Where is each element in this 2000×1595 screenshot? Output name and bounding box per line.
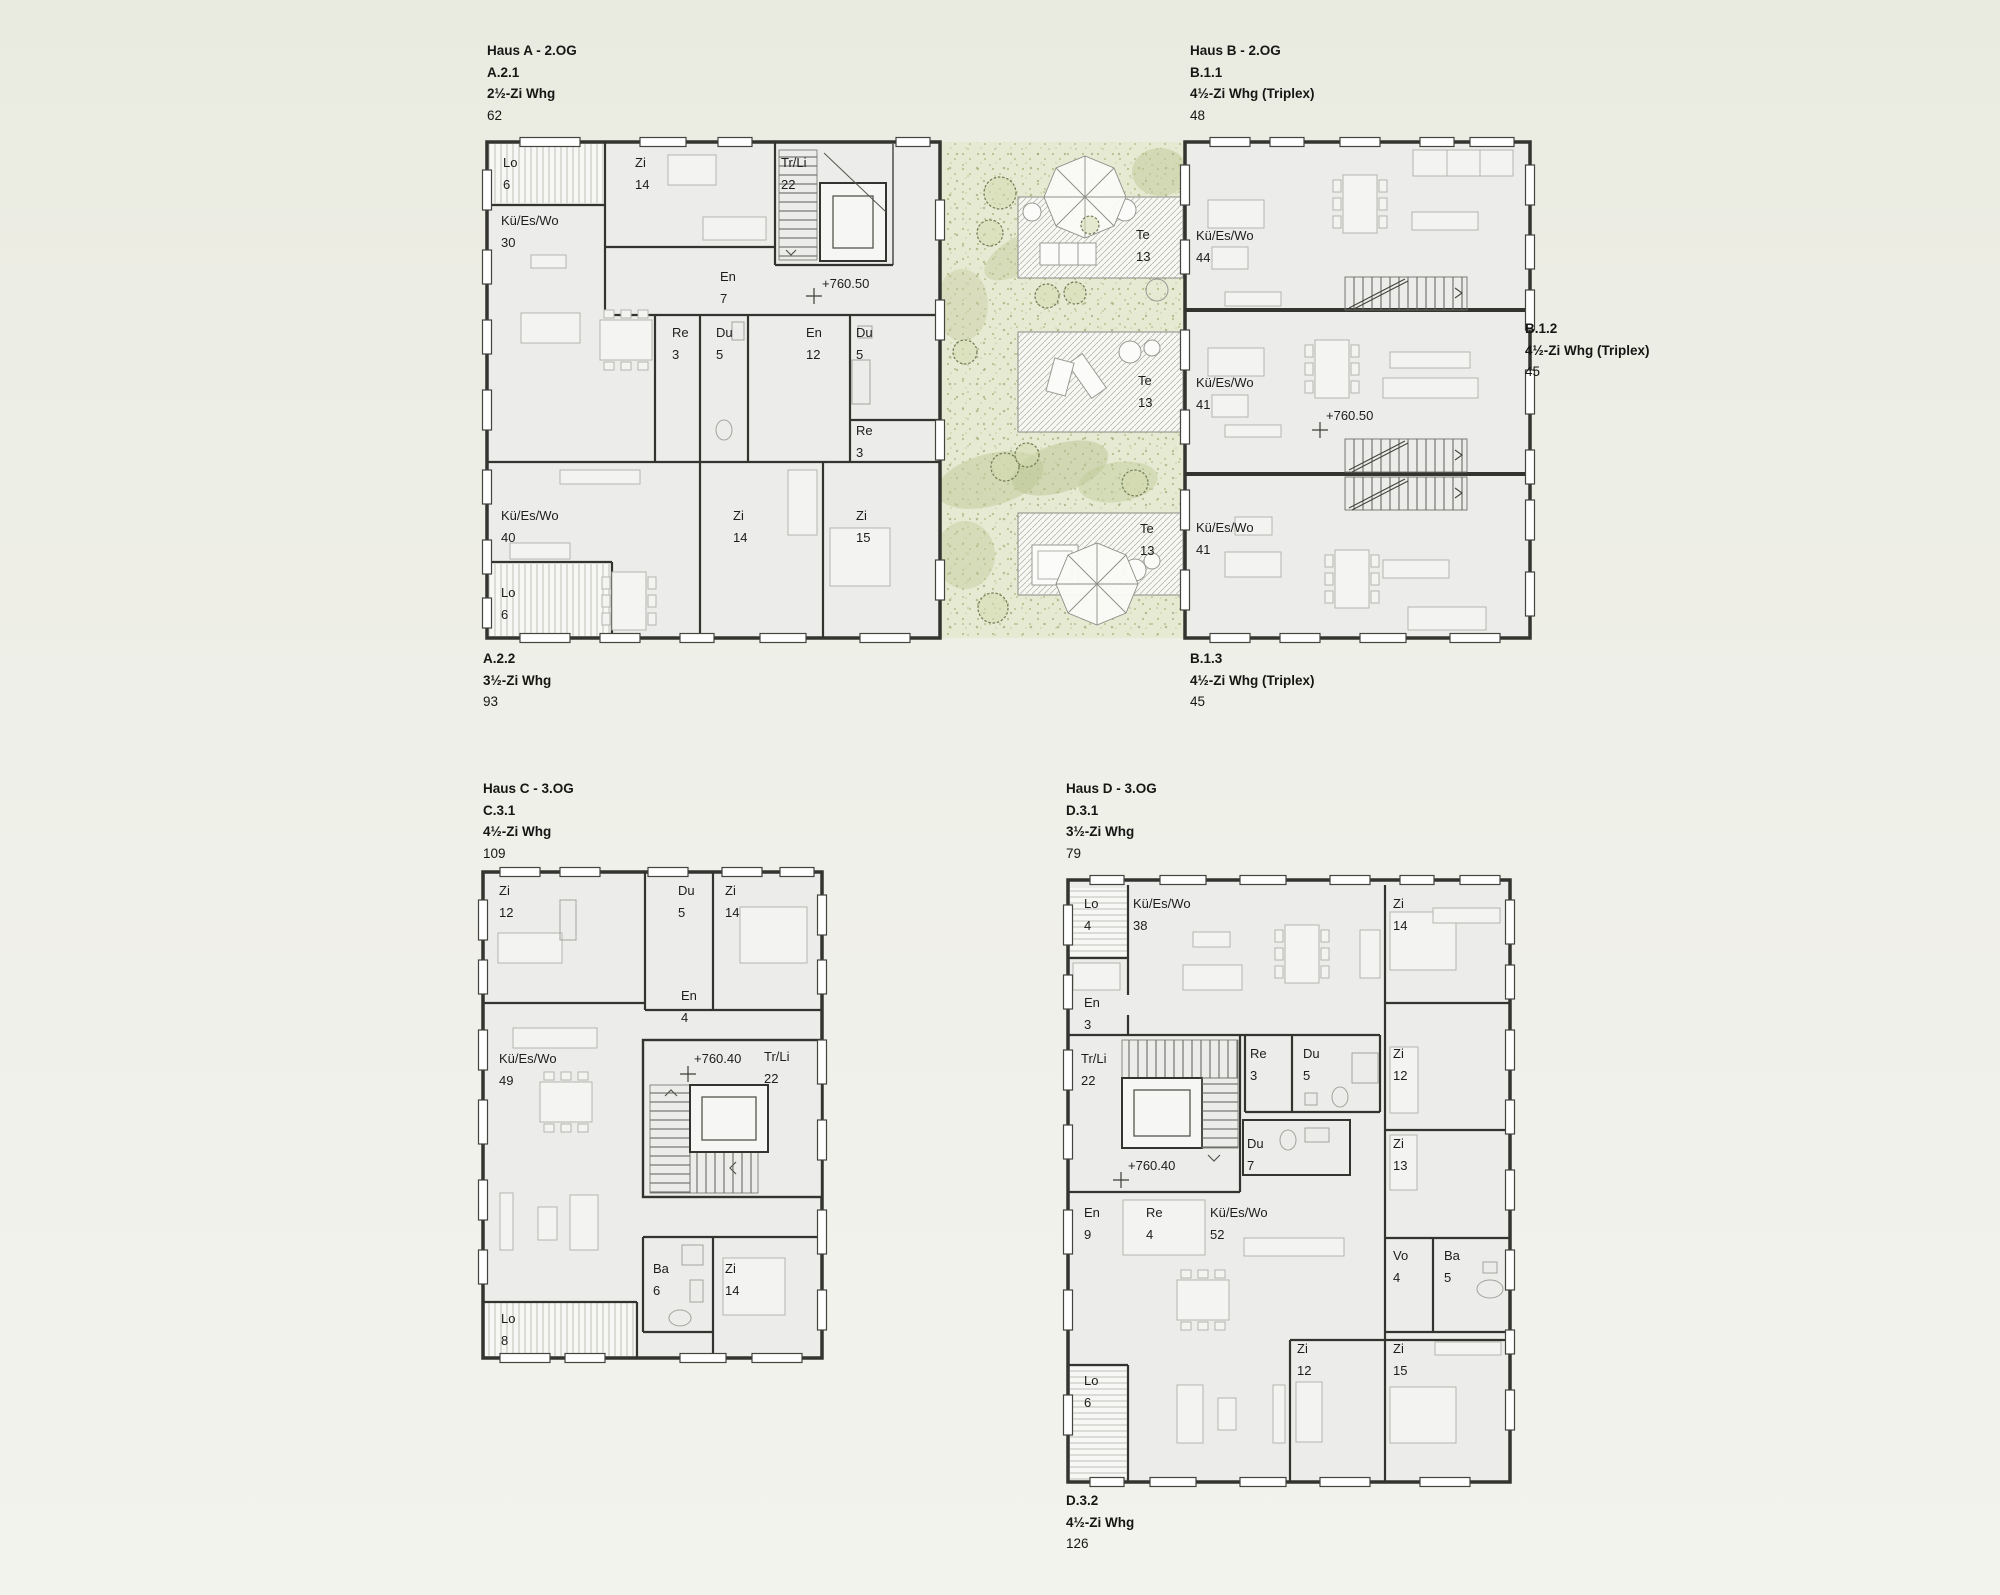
haus-d-plan	[1064, 876, 1515, 1487]
room-area: 3	[672, 344, 689, 366]
room-name: Zi	[1393, 1133, 1407, 1155]
unit-type: 4½-Zi Whg (Triplex)	[1190, 670, 1315, 692]
room-name: Lo	[501, 1308, 515, 1330]
haus-b-unit: B.1.1	[1190, 62, 1315, 84]
room-name: Te	[1140, 518, 1154, 540]
haus-d-type: 3½-Zi Whg	[1066, 821, 1157, 843]
room-area: 41	[1196, 394, 1254, 416]
haus-d-title: Haus D - 3.OG	[1066, 778, 1157, 800]
room-name: En	[681, 985, 697, 1007]
room-label: Zi13	[1393, 1133, 1407, 1177]
unit-area: 93	[483, 691, 551, 713]
haus-c-type: 4½-Zi Whg	[483, 821, 574, 843]
room-name: Zi	[635, 152, 649, 174]
room-label: Zi14	[725, 880, 739, 924]
room-area: 6	[501, 604, 515, 626]
room-label: Re3	[672, 322, 689, 366]
room-label: Ba5	[1444, 1245, 1460, 1289]
room-name: En	[1084, 992, 1100, 1014]
room-area: 4	[681, 1007, 697, 1029]
room-name: Du	[1303, 1043, 1320, 1065]
room-name: En	[1084, 1202, 1100, 1224]
haus-c-title: Haus C - 3.OG	[483, 778, 574, 800]
unit-area: 126	[1066, 1533, 1134, 1555]
room-name: Zi	[725, 1258, 739, 1280]
unit-label: B.1.3	[1190, 648, 1315, 670]
room-label: Du5	[856, 322, 873, 366]
room-label: En9	[1084, 1202, 1100, 1246]
floor-plan-drawing	[0, 0, 2000, 1595]
room-area: 22	[781, 174, 807, 196]
room-area: 4	[1084, 915, 1098, 937]
room-area: 52	[1210, 1224, 1268, 1246]
room-area: 15	[1393, 1360, 1407, 1382]
room-label: En3	[1084, 992, 1100, 1036]
room-label: En7	[720, 266, 736, 310]
room-name: Tr/Li	[781, 152, 807, 174]
room-label: Kü/Es/Wo30	[501, 210, 559, 254]
room-area: 9	[1084, 1224, 1100, 1246]
haus-d-unit: D.3.1	[1066, 800, 1157, 822]
room-area: 22	[1081, 1070, 1107, 1092]
room-name: Du	[1247, 1133, 1264, 1155]
room-name: Kü/Es/Wo	[1196, 372, 1254, 394]
room-area: 7	[1247, 1155, 1264, 1177]
room-label: Tr/Li22	[1081, 1048, 1107, 1092]
room-label: Zi15	[1393, 1338, 1407, 1382]
room-area: 12	[806, 344, 822, 366]
room-label: Zi14	[725, 1258, 739, 1302]
room-label: Du5	[1303, 1043, 1320, 1087]
room-name: Re	[856, 420, 873, 442]
room-area: 12	[1393, 1065, 1407, 1087]
room-label: Re3	[856, 420, 873, 464]
room-label: Kü/Es/Wo41	[1196, 517, 1254, 561]
room-name: Te	[1138, 370, 1152, 392]
room-area: 6	[1084, 1392, 1098, 1414]
room-name: Zi	[733, 505, 747, 527]
haus-a-unit: A.2.1	[487, 62, 577, 84]
haus-a-header: Haus A - 2.OG A.2.1 2½-Zi Whg 62	[487, 40, 577, 126]
room-label: Lo6	[503, 152, 517, 196]
room-area: 14	[725, 1280, 739, 1302]
terrace-2	[1018, 332, 1183, 432]
room-area: 13	[1140, 540, 1154, 562]
room-label: Kü/Es/Wo44	[1196, 225, 1254, 269]
room-area: 14	[733, 527, 747, 549]
room-area: 3	[1084, 1014, 1100, 1036]
haus-b-title: Haus B - 2.OG	[1190, 40, 1315, 62]
room-label: Re3	[1250, 1043, 1267, 1087]
room-name: Zi	[725, 880, 739, 902]
room-area: 6	[653, 1280, 669, 1302]
room-name: Vo	[1393, 1245, 1408, 1267]
terrace-label: Te13	[1136, 224, 1150, 268]
room-name: Kü/Es/Wo	[1196, 225, 1254, 247]
elevation-label: +760.40	[694, 1051, 741, 1066]
unit-type: 3½-Zi Whg	[483, 670, 551, 692]
room-label: Zi12	[1393, 1043, 1407, 1087]
room-label: Kü/Es/Wo38	[1133, 893, 1191, 937]
room-area: 6	[503, 174, 517, 196]
haus-c-unit: C.3.1	[483, 800, 574, 822]
room-area: 44	[1196, 247, 1254, 269]
elevation-label: +760.40	[1128, 1158, 1175, 1173]
room-label: Zi15	[856, 505, 870, 549]
room-label: Kü/Es/Wo40	[501, 505, 559, 549]
room-area: 5	[1444, 1267, 1460, 1289]
room-area: 13	[1138, 392, 1152, 414]
room-name: Kü/Es/Wo	[499, 1048, 557, 1070]
haus-a-type: 2½-Zi Whg	[487, 83, 577, 105]
room-name: Kü/Es/Wo	[1196, 517, 1254, 539]
room-name: Kü/Es/Wo	[1133, 893, 1191, 915]
room-area: 12	[499, 902, 513, 924]
terrace-label: Te13	[1138, 370, 1152, 414]
room-name: Tr/Li	[1081, 1048, 1107, 1070]
room-name: En	[806, 322, 822, 344]
room-area: 3	[856, 442, 873, 464]
room-label: Ba6	[653, 1258, 669, 1302]
unit-area: 45	[1190, 691, 1315, 713]
unit-label: B.1.2	[1525, 318, 1650, 340]
room-name: Zi	[1297, 1338, 1311, 1360]
room-area: 13	[1393, 1155, 1407, 1177]
room-name: Kü/Es/Wo	[501, 210, 559, 232]
room-name: Lo	[503, 152, 517, 174]
haus-c-area: 109	[483, 843, 574, 865]
room-name: Re	[1146, 1202, 1163, 1224]
room-label: Lo6	[1084, 1370, 1098, 1414]
room-area: 5	[1303, 1065, 1320, 1087]
room-name: Ba	[1444, 1245, 1460, 1267]
room-label: Tr/Li22	[781, 152, 807, 196]
room-label: Du5	[716, 322, 733, 366]
room-name: Lo	[501, 582, 515, 604]
room-label: Du5	[678, 880, 695, 924]
haus-a-footer: A.2.2 3½-Zi Whg 93	[483, 648, 551, 713]
room-name: Zi	[1393, 1338, 1407, 1360]
room-label: Zi14	[1393, 893, 1407, 937]
room-area: 8	[501, 1330, 515, 1352]
haus-b-header: Haus B - 2.OG B.1.1 4½-Zi Whg (Triplex) …	[1190, 40, 1315, 126]
room-name: Te	[1136, 224, 1150, 246]
haus-b-side-label: B.1.2 4½-Zi Whg (Triplex) 45	[1525, 318, 1650, 383]
room-label: En4	[681, 985, 697, 1029]
room-area: 14	[635, 174, 649, 196]
room-area: 49	[499, 1070, 557, 1092]
room-label: Lo8	[501, 1308, 515, 1352]
haus-a-title: Haus A - 2.OG	[487, 40, 577, 62]
room-name: Re	[1250, 1043, 1267, 1065]
elevation-label: +760.50	[1326, 408, 1373, 423]
room-name: Du	[678, 880, 695, 902]
room-area: 3	[1250, 1065, 1267, 1087]
haus-d-footer: D.3.2 4½-Zi Whg 126	[1066, 1490, 1134, 1555]
haus-b-type: 4½-Zi Whg (Triplex)	[1190, 83, 1315, 105]
room-area: 12	[1297, 1360, 1311, 1382]
haus-b-footer: B.1.3 4½-Zi Whg (Triplex) 45	[1190, 648, 1315, 713]
haus-a-area: 62	[487, 105, 577, 127]
room-label: Vo4	[1393, 1245, 1408, 1289]
room-name: Ba	[653, 1258, 669, 1280]
room-label: Lo6	[501, 582, 515, 626]
room-label: Re4	[1146, 1202, 1163, 1246]
room-name: Du	[716, 322, 733, 344]
room-label: Lo4	[1084, 893, 1098, 937]
unit-label: D.3.2	[1066, 1490, 1134, 1512]
room-label: Kü/Es/Wo49	[499, 1048, 557, 1092]
room-name: Lo	[1084, 893, 1098, 915]
room-label: Tr/Li22	[764, 1046, 790, 1090]
room-name: Kü/Es/Wo	[1210, 1202, 1268, 1224]
terrace-label: Te13	[1140, 518, 1154, 562]
room-label: Kü/Es/Wo52	[1210, 1202, 1268, 1246]
room-name: Lo	[1084, 1370, 1098, 1392]
room-area: 15	[856, 527, 870, 549]
room-label: Zi14	[733, 505, 747, 549]
room-name: Zi	[1393, 1043, 1407, 1065]
room-name: Zi	[1393, 893, 1407, 915]
room-area: 5	[716, 344, 733, 366]
room-area: 22	[764, 1068, 790, 1090]
room-name: Du	[856, 322, 873, 344]
elevation-label: +760.50	[822, 276, 869, 291]
room-name: Kü/Es/Wo	[501, 505, 559, 527]
room-label: En12	[806, 322, 822, 366]
room-area: 14	[725, 902, 739, 924]
haus-c-header: Haus C - 3.OG C.3.1 4½-Zi Whg 109	[483, 778, 574, 864]
haus-d-header: Haus D - 3.OG D.3.1 3½-Zi Whg 79	[1066, 778, 1157, 864]
room-label: Zi12	[1297, 1338, 1311, 1382]
room-area: 40	[501, 527, 559, 549]
room-name: En	[720, 266, 736, 288]
room-name: Re	[672, 322, 689, 344]
haus-d-area: 79	[1066, 843, 1157, 865]
room-label: Kü/Es/Wo41	[1196, 372, 1254, 416]
room-name: Tr/Li	[764, 1046, 790, 1068]
room-area: 7	[720, 288, 736, 310]
unit-label: A.2.2	[483, 648, 551, 670]
unit-type: 4½-Zi Whg (Triplex)	[1525, 340, 1650, 362]
room-area: 30	[501, 232, 559, 254]
haus-b-area: 48	[1190, 105, 1315, 127]
room-area: 38	[1133, 915, 1191, 937]
unit-area: 45	[1525, 361, 1650, 383]
room-area: 5	[856, 344, 873, 366]
room-label: Zi12	[499, 880, 513, 924]
room-area: 41	[1196, 539, 1254, 561]
unit-type: 4½-Zi Whg	[1066, 1512, 1134, 1534]
room-label: Zi14	[635, 152, 649, 196]
room-area: 4	[1393, 1267, 1408, 1289]
room-label: Du7	[1247, 1133, 1264, 1177]
room-area: 5	[678, 902, 695, 924]
room-area: 4	[1146, 1224, 1163, 1246]
room-name: Zi	[856, 505, 870, 527]
room-area: 13	[1136, 246, 1150, 268]
room-name: Zi	[499, 880, 513, 902]
room-area: 14	[1393, 915, 1407, 937]
